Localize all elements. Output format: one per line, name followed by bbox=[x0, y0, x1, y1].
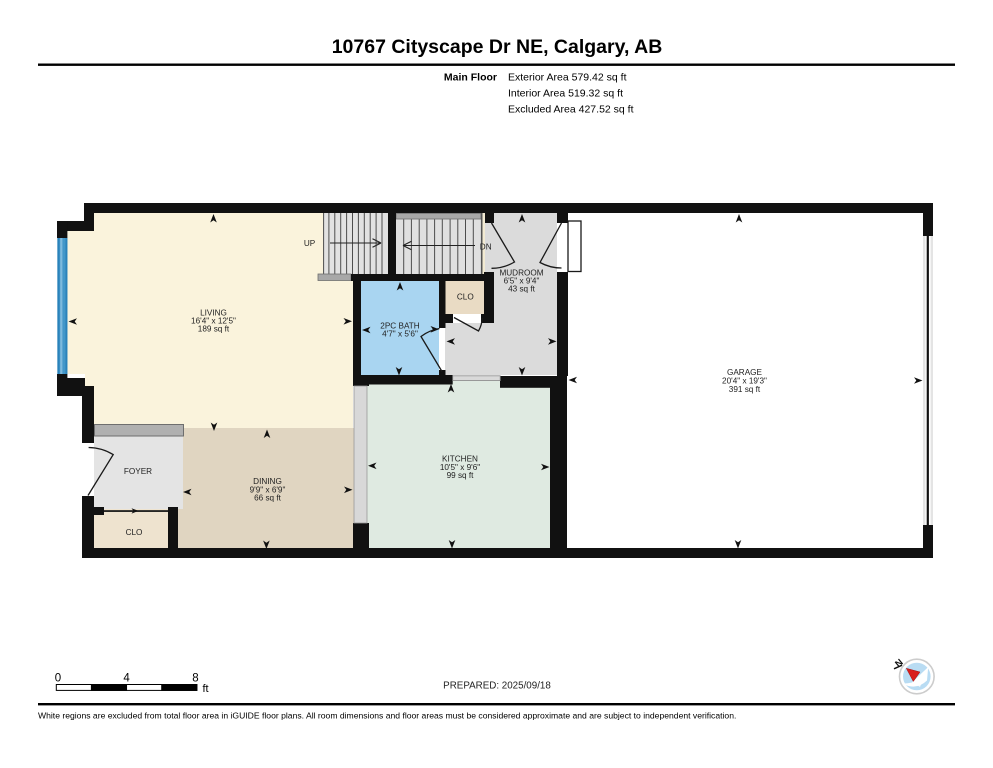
svg-text:Excluded Area 427.52 sq ft: Excluded Area 427.52 sq ft bbox=[508, 104, 634, 116]
svg-text:UP: UP bbox=[304, 239, 316, 248]
svg-text:391 sq ft: 391 sq ft bbox=[729, 385, 761, 394]
svg-text:4: 4 bbox=[123, 673, 130, 685]
svg-text:DN: DN bbox=[480, 243, 492, 252]
svg-text:ft: ft bbox=[203, 683, 209, 695]
svg-text:Main Floor: Main Floor bbox=[444, 72, 497, 84]
svg-text:10767 Cityscape Dr NE, Calgary: 10767 Cityscape Dr NE, Calgary, AB bbox=[332, 36, 663, 58]
svg-text:66 sq ft: 66 sq ft bbox=[254, 494, 282, 503]
svg-text:CLO: CLO bbox=[126, 528, 143, 537]
svg-text:FOYER: FOYER bbox=[124, 467, 152, 476]
svg-text:99 sq ft: 99 sq ft bbox=[447, 471, 475, 480]
svg-text:8: 8 bbox=[192, 673, 198, 685]
svg-text:PREPARED: 2025/09/18: PREPARED: 2025/09/18 bbox=[443, 681, 551, 692]
svg-text:Exterior Area 579.42 sq ft: Exterior Area 579.42 sq ft bbox=[508, 72, 627, 84]
svg-text:0: 0 bbox=[55, 673, 61, 685]
svg-text:4'7" x 5'6": 4'7" x 5'6" bbox=[382, 329, 418, 338]
svg-text:Interior Area 519.32 sq ft: Interior Area 519.32 sq ft bbox=[508, 88, 623, 100]
svg-text:White regions are excluded fro: White regions are excluded from total fl… bbox=[38, 711, 736, 721]
svg-text:CLO: CLO bbox=[457, 293, 474, 302]
svg-text:189 sq ft: 189 sq ft bbox=[198, 325, 230, 334]
svg-text:43 sq ft: 43 sq ft bbox=[508, 285, 536, 294]
